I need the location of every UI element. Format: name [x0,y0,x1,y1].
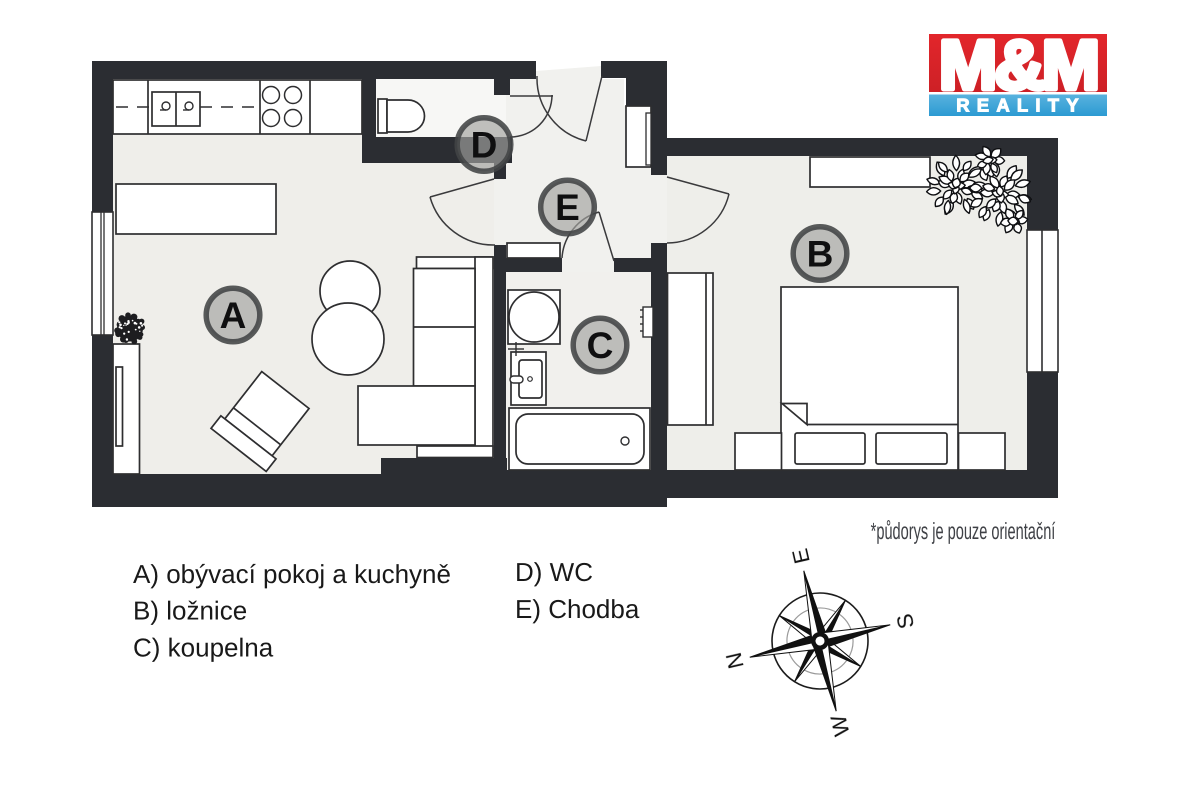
svg-text:M&M: M&M [939,26,1097,104]
svg-text:REALITY: REALITY [956,95,1086,116]
svg-text:A) obývací pokoj a kuchyně: A) obývací pokoj a kuchyně [133,559,451,589]
svg-text:C) koupelna: C) koupelna [133,633,274,663]
svg-text:A: A [220,295,247,336]
svg-text:B) ložnice: B) ložnice [133,596,247,626]
svg-text:D) WC: D) WC [515,557,593,587]
svg-text:B: B [807,234,834,275]
svg-text:*půdorys je pouze orientační: *půdorys je pouze orientační [871,518,1056,544]
svg-text:D: D [471,125,498,166]
svg-text:E) Chodba: E) Chodba [515,594,640,624]
svg-text:E: E [555,187,580,228]
svg-text:C: C [587,325,614,366]
